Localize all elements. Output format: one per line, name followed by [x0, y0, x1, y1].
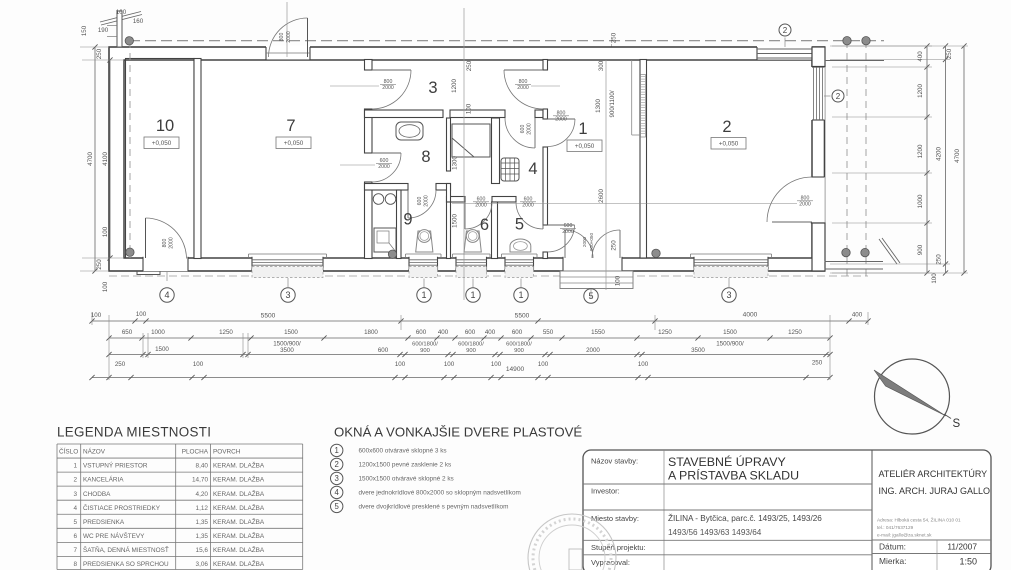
svg-text:400: 400 — [917, 51, 924, 62]
svg-text:2000: 2000 — [169, 237, 175, 249]
svg-text:250: 250 — [96, 259, 103, 270]
svg-text:1,35: 1,35 — [196, 519, 209, 526]
svg-text:dvere dvojkrídlové presklené s: dvere dvojkrídlové presklené s pevným na… — [359, 504, 509, 511]
svg-text:KERAM. DLAŽBA: KERAM. DLAŽBA — [213, 545, 265, 554]
svg-text:KERAM. DLAŽBA: KERAM. DLAŽBA — [213, 461, 265, 470]
svg-text:2000: 2000 — [517, 85, 529, 91]
svg-text:OKNÁ A VONKAJŠIE DVERE PLASTOV: OKNÁ A VONKAJŠIE DVERE PLASTOVÉ — [334, 425, 582, 440]
svg-text:4: 4 — [335, 488, 340, 497]
svg-text:7: 7 — [73, 547, 77, 554]
svg-text:1: 1 — [470, 290, 475, 300]
svg-text:11/2007: 11/2007 — [947, 542, 977, 552]
svg-text:tel.: 041/7637129: tel.: 041/7637129 — [877, 525, 914, 530]
svg-text:400: 400 — [438, 329, 449, 336]
svg-text:10: 10 — [156, 117, 174, 135]
svg-text:2000: 2000 — [378, 164, 390, 170]
svg-text:8: 8 — [73, 561, 77, 568]
svg-text:KERAM. DLAŽBA: KERAM. DLAŽBA — [213, 517, 265, 526]
svg-text:1200: 1200 — [451, 79, 458, 93]
svg-text:1250: 1250 — [788, 329, 802, 336]
svg-text:2: 2 — [335, 460, 339, 469]
svg-text:100: 100 — [615, 275, 622, 286]
svg-text:600: 600 — [417, 197, 423, 206]
svg-text:190: 190 — [98, 27, 109, 34]
svg-text:250: 250 — [611, 32, 618, 43]
svg-text:900: 900 — [917, 244, 924, 255]
svg-text:100: 100 — [538, 361, 549, 368]
svg-text:ŠATŇA, DENNÁ MIESTNOSŤ: ŠATŇA, DENNÁ MIESTNOSŤ — [83, 545, 169, 554]
svg-text:550: 550 — [543, 329, 554, 336]
svg-text:NÁZOV: NÁZOV — [83, 447, 106, 456]
svg-text:400: 400 — [485, 329, 496, 336]
svg-text:4700: 4700 — [954, 149, 961, 163]
svg-text:150: 150 — [81, 25, 88, 36]
svg-text:8,40: 8,40 — [196, 463, 209, 470]
svg-text:1:50: 1:50 — [959, 557, 977, 567]
svg-text:4,20: 4,20 — [196, 491, 209, 498]
svg-text:S: S — [953, 418, 961, 430]
svg-text:Názov stavby:: Názov stavby: — [591, 457, 638, 466]
svg-text:4200: 4200 — [936, 147, 943, 161]
svg-text:2: 2 — [73, 477, 77, 484]
svg-text:100: 100 — [444, 361, 455, 368]
svg-text:1: 1 — [421, 290, 426, 300]
svg-text:2000: 2000 — [799, 201, 811, 207]
svg-text:100: 100 — [116, 9, 127, 16]
svg-text:600: 600 — [520, 125, 526, 134]
svg-text:100: 100 — [136, 311, 147, 318]
svg-text:Stupeň projektu:: Stupeň projektu: — [591, 543, 646, 552]
svg-text:300: 300 — [598, 60, 605, 71]
svg-text:WC PRE NÁVŠTEVY: WC PRE NÁVŠTEVY — [83, 531, 145, 540]
svg-text:1250: 1250 — [658, 329, 672, 336]
svg-text:250: 250 — [611, 240, 618, 251]
svg-text:1300: 1300 — [452, 156, 459, 170]
svg-text:4000: 4000 — [743, 312, 758, 319]
svg-text:900: 900 — [514, 348, 524, 354]
svg-text:250: 250 — [936, 254, 943, 265]
svg-text:1800: 1800 — [364, 329, 378, 336]
svg-text:1500: 1500 — [452, 214, 459, 228]
svg-text:ATELIÉR ARCHITEKTÚRY: ATELIÉR ARCHITEKTÚRY — [879, 469, 988, 479]
svg-text:5500: 5500 — [515, 313, 530, 320]
svg-text:2000: 2000 — [527, 123, 533, 135]
svg-text:1550: 1550 — [591, 329, 605, 336]
svg-text:1,35: 1,35 — [196, 533, 209, 540]
svg-text:600/1800/: 600/1800/ — [506, 342, 532, 348]
svg-text:1500: 1500 — [155, 346, 169, 353]
svg-text:600: 600 — [512, 329, 523, 336]
svg-text:5: 5 — [335, 502, 340, 511]
svg-text:5: 5 — [73, 519, 77, 526]
svg-text:1300: 1300 — [595, 99, 602, 113]
svg-text:4100: 4100 — [102, 152, 109, 166]
svg-text:100: 100 — [395, 361, 406, 368]
svg-text:1: 1 — [73, 463, 77, 470]
svg-text:1500x1500 otváravé sklopné 2 k: 1500x1500 otváravé sklopné 2 ks — [359, 476, 454, 483]
svg-text:POVRCH: POVRCH — [213, 449, 241, 456]
svg-text:KERAM. DLAŽBA: KERAM. DLAŽBA — [213, 475, 265, 484]
svg-text:Dátum:: Dátum: — [879, 542, 906, 552]
svg-text:4700: 4700 — [87, 152, 94, 166]
svg-text:KERAM. DLAŽBA: KERAM. DLAŽBA — [213, 559, 265, 568]
svg-text:15,6: 15,6 — [196, 547, 209, 554]
svg-text:8: 8 — [421, 148, 430, 166]
svg-text:KERAM. DLAŽBA: KERAM. DLAŽBA — [213, 531, 265, 540]
svg-text:1: 1 — [578, 120, 587, 138]
svg-text:e-mail: jgallo@za.sknet.sk: e-mail: jgallo@za.sknet.sk — [877, 533, 932, 538]
svg-text:1: 1 — [518, 290, 523, 300]
svg-text:100: 100 — [931, 273, 938, 284]
svg-text:KERAM. DLAŽBA: KERAM. DLAŽBA — [213, 503, 265, 512]
svg-text:LEGENDA MIESTNOSTI: LEGENDA MIESTNOSTI — [57, 425, 211, 440]
svg-text:PLOCHA: PLOCHA — [182, 449, 209, 456]
svg-text:CHODBA: CHODBA — [83, 491, 111, 498]
svg-text:3,06: 3,06 — [196, 561, 209, 568]
svg-text:1250: 1250 — [219, 329, 233, 336]
svg-text:6: 6 — [480, 216, 489, 234]
svg-text:2000: 2000 — [562, 229, 574, 235]
svg-text:ING. ARCH. JURAJ GALLO: ING. ARCH. JURAJ GALLO — [879, 486, 991, 496]
svg-text:2000: 2000 — [582, 236, 587, 247]
svg-text:14,70: 14,70 — [192, 477, 208, 484]
svg-text:100: 100 — [466, 103, 473, 114]
svg-text:250: 250 — [96, 48, 103, 59]
svg-text:1000: 1000 — [151, 329, 165, 336]
svg-text:3500: 3500 — [691, 347, 705, 354]
svg-text:600: 600 — [378, 347, 389, 354]
svg-text:PREDSIENKA SO SPRCHOU: PREDSIENKA SO SPRCHOU — [83, 561, 169, 568]
svg-text:1500: 1500 — [723, 329, 737, 336]
svg-text:dvere jednokrídlové 800x2000 s: dvere jednokrídlové 800x2000 so sklopným… — [359, 490, 521, 497]
svg-text:1500/900/: 1500/900/ — [716, 341, 744, 348]
svg-text:3: 3 — [428, 79, 437, 97]
svg-text:ČISTIACE PROSTRIEDKY: ČISTIACE PROSTRIEDKY — [83, 503, 161, 512]
svg-text:+0,050: +0,050 — [152, 140, 172, 147]
svg-text:4: 4 — [164, 290, 169, 300]
svg-text:1: 1 — [335, 446, 339, 455]
svg-text:250: 250 — [812, 360, 823, 367]
svg-text:900: 900 — [420, 348, 430, 354]
svg-text:100: 100 — [91, 312, 102, 319]
svg-text:800: 800 — [279, 33, 285, 42]
svg-text:PREDSIENKA: PREDSIENKA — [83, 519, 125, 526]
svg-text:600x600 otváravé sklopné 3 ks: 600x600 otváravé sklopné 3 ks — [359, 448, 447, 455]
svg-text:100: 100 — [102, 281, 109, 292]
svg-text:Miesto stavby:: Miesto stavby: — [591, 514, 639, 523]
svg-text:2000: 2000 — [522, 202, 534, 208]
svg-text:3: 3 — [726, 290, 731, 300]
svg-text:1200x1500 pevné zasklenie 2 ks: 1200x1500 pevné zasklenie 2 ks — [359, 462, 452, 469]
svg-text:100: 100 — [638, 361, 649, 368]
svg-text:1,12: 1,12 — [196, 505, 209, 512]
svg-text:KANCELÁRIA: KANCELÁRIA — [83, 475, 124, 484]
svg-text:2000: 2000 — [475, 202, 487, 208]
svg-text:5500: 5500 — [261, 313, 276, 320]
svg-text:400: 400 — [852, 312, 863, 319]
svg-text:ČÍSLO: ČÍSLO — [59, 447, 78, 456]
svg-text:2000: 2000 — [586, 347, 600, 354]
svg-text:3500: 3500 — [280, 347, 294, 354]
svg-text:250: 250 — [946, 48, 953, 59]
svg-text:7: 7 — [286, 117, 295, 135]
svg-text:1493/56 1493/63 1493/64: 1493/56 1493/63 1493/64 — [668, 528, 762, 537]
svg-text:4: 4 — [528, 160, 537, 178]
svg-text:+0,050: +0,050 — [575, 143, 595, 150]
svg-text:2000: 2000 — [424, 195, 430, 207]
svg-text:800: 800 — [162, 239, 168, 248]
svg-text:1200: 1200 — [917, 84, 924, 98]
svg-text:900: 900 — [466, 348, 476, 354]
svg-text:Mierka:: Mierka: — [879, 556, 906, 566]
svg-text:100: 100 — [102, 226, 109, 237]
svg-text:900/1100/: 900/1100/ — [609, 90, 616, 117]
svg-text:2000: 2000 — [382, 85, 394, 91]
svg-text:Adresa: Hlboká cesta 54, ŽILI: Adresa: Hlboká cesta 54, ŽILINA 010 01 — [877, 516, 961, 523]
svg-text:650: 650 — [122, 329, 133, 336]
svg-text:900+050: 900+050 — [589, 233, 594, 251]
svg-text:+0,050: +0,050 — [284, 140, 304, 147]
svg-text:KERAM. DLAŽBA: KERAM. DLAŽBA — [213, 489, 265, 498]
svg-text:1000: 1000 — [917, 194, 924, 208]
svg-text:100: 100 — [193, 361, 204, 368]
svg-text:160: 160 — [133, 18, 144, 25]
svg-text:3: 3 — [73, 491, 77, 498]
svg-text:STAVEBNÉ ÚPRAVY: STAVEBNÉ ÚPRAVY — [668, 454, 786, 469]
svg-text:ŽILINA - Bytčica, parc.č. 1493: ŽILINA - Bytčica, parc.č. 1493/25, 1493/… — [668, 513, 822, 523]
svg-text:1200: 1200 — [917, 144, 924, 158]
svg-text:VSTUPNÝ PRIESTOR: VSTUPNÝ PRIESTOR — [83, 461, 148, 470]
svg-text:100: 100 — [491, 361, 502, 368]
svg-text:Investor:: Investor: — [591, 486, 620, 495]
svg-text:3: 3 — [285, 290, 290, 300]
svg-text:14900: 14900 — [506, 366, 525, 373]
svg-text:5: 5 — [515, 216, 524, 234]
svg-text:+0,050: +0,050 — [719, 141, 739, 148]
svg-text:4: 4 — [73, 505, 77, 512]
svg-text:6: 6 — [73, 533, 77, 540]
svg-text:250: 250 — [115, 361, 126, 368]
svg-text:600: 600 — [416, 329, 427, 336]
svg-text:600/1800/: 600/1800/ — [458, 342, 484, 348]
svg-text:2: 2 — [722, 118, 731, 136]
svg-text:250: 250 — [466, 60, 473, 71]
svg-text:2: 2 — [783, 26, 788, 35]
svg-text:3: 3 — [335, 474, 339, 483]
svg-text:A PRÍSTAVBA SKLADU: A PRÍSTAVBA SKLADU — [668, 468, 799, 483]
svg-text:2000: 2000 — [555, 116, 567, 122]
svg-text:2600: 2600 — [598, 189, 605, 203]
svg-text:1500: 1500 — [284, 329, 298, 336]
svg-text:9: 9 — [403, 211, 412, 229]
svg-text:600/1800/: 600/1800/ — [412, 342, 438, 348]
svg-text:2000: 2000 — [286, 31, 292, 43]
svg-text:600: 600 — [465, 329, 476, 336]
svg-text:2: 2 — [836, 92, 841, 101]
